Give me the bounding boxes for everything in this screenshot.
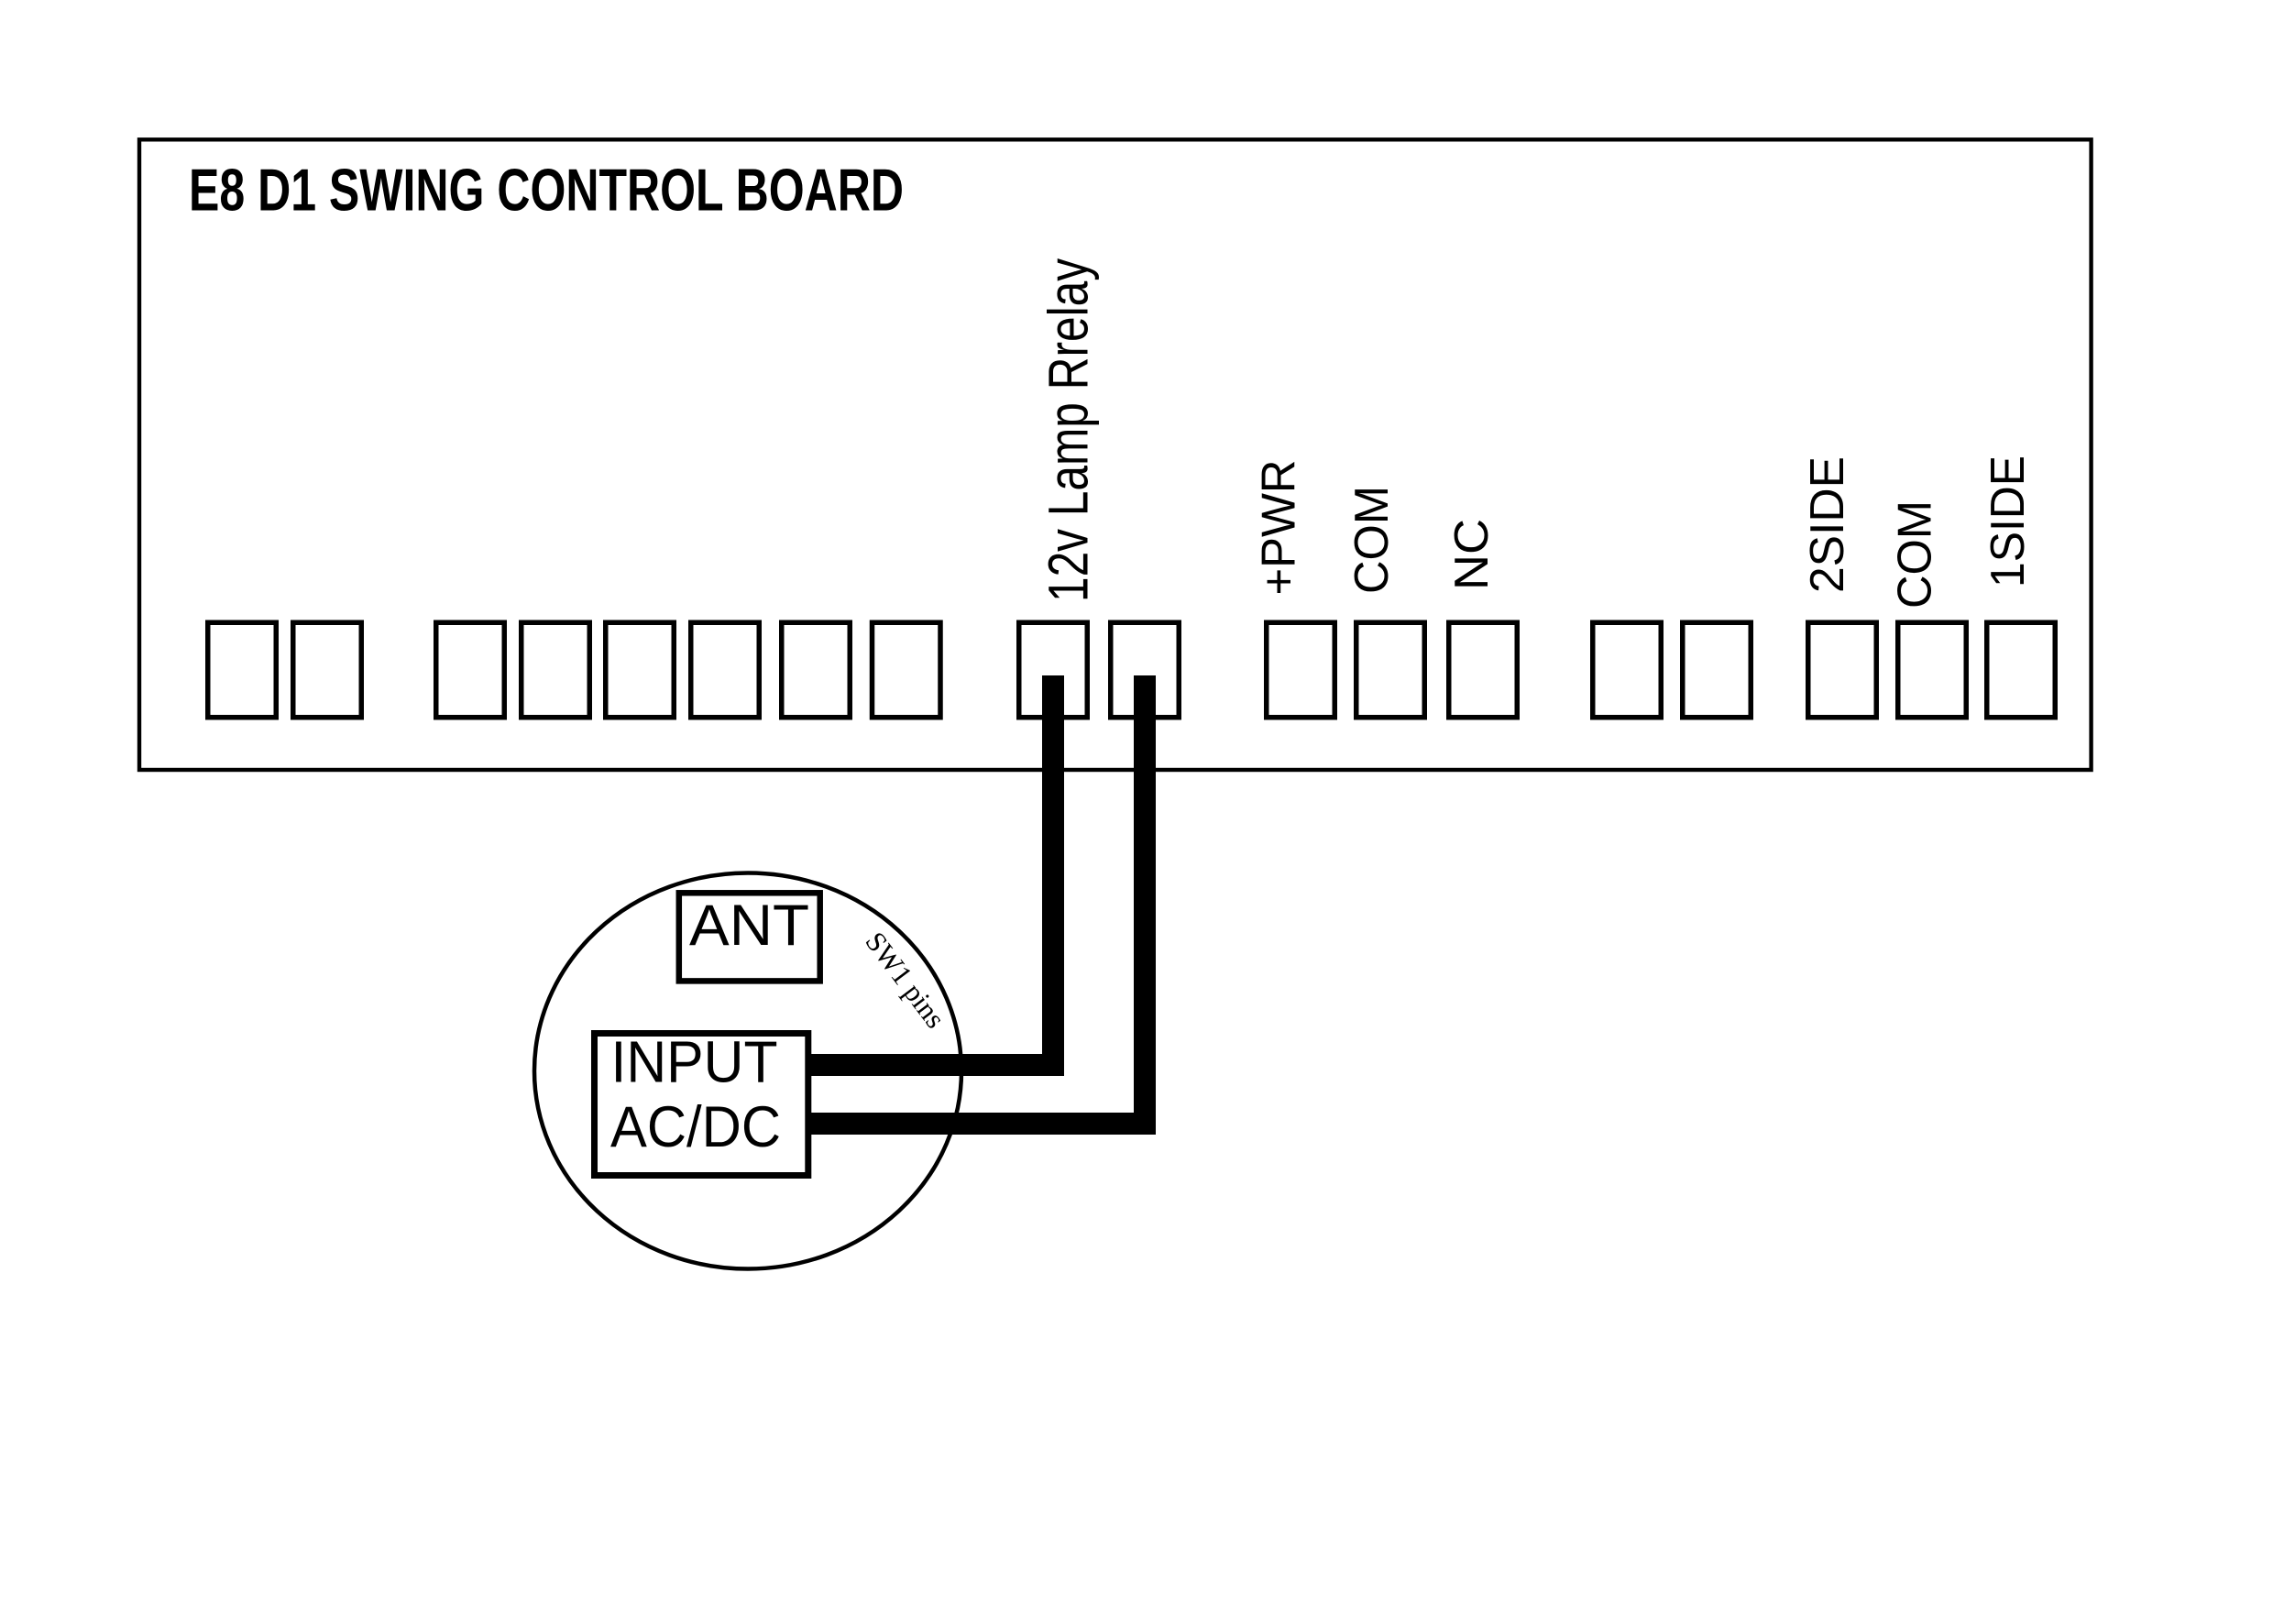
svg-text:INPUT: INPUT <box>611 1029 778 1095</box>
svg-text:E8 D1 SWING CONTROL BOARD: E8 D1 SWING CONTROL BOARD <box>189 156 904 223</box>
svg-text:+PWR: +PWR <box>1253 460 1306 596</box>
svg-text:1SIDE: 1SIDE <box>1982 455 2035 587</box>
svg-text:COM: COM <box>1345 486 1399 594</box>
svg-text:NC: NC <box>1445 519 1499 590</box>
svg-text:2SIDE: 2SIDE <box>1801 456 1854 593</box>
svg-text:12v Lamp Rrelay: 12v Lamp Rrelay <box>1038 258 1100 602</box>
svg-text:ANT: ANT <box>689 894 809 958</box>
svg-text:AC/DC: AC/DC <box>610 1095 781 1159</box>
svg-text:COM: COM <box>1889 500 1942 609</box>
